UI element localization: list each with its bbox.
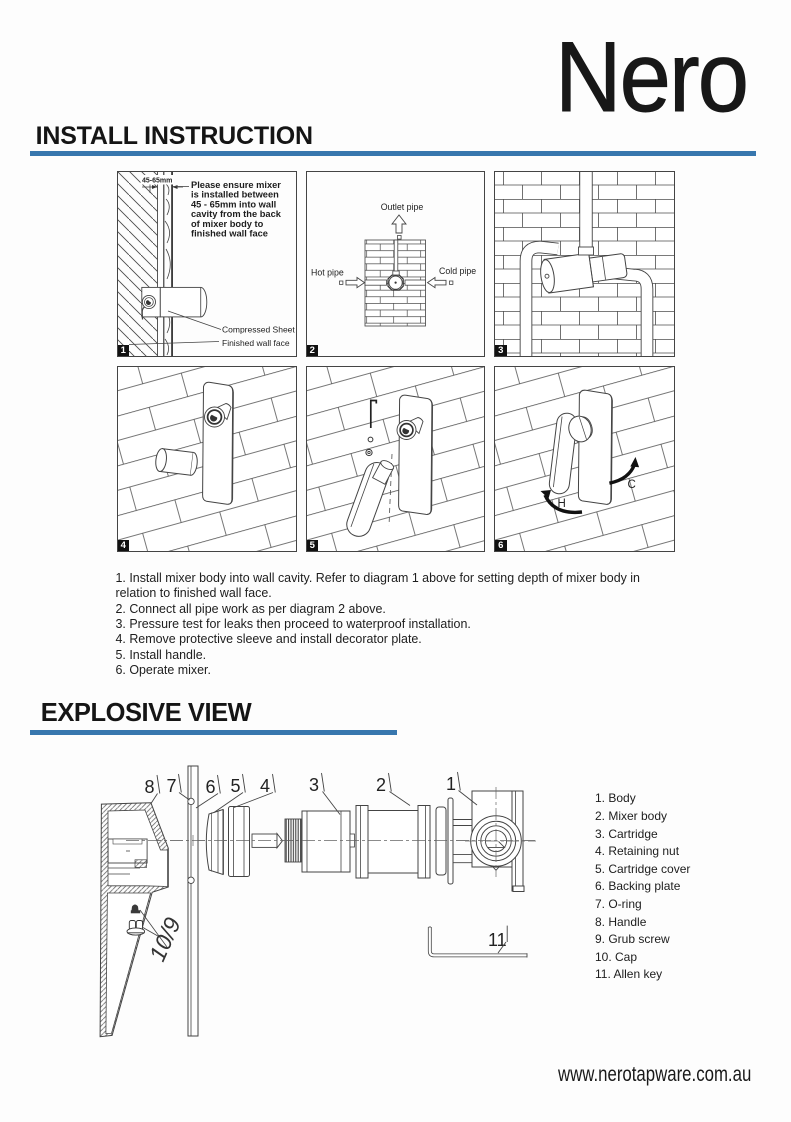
svg-text:Cold pipe: Cold pipe — [439, 266, 476, 276]
svg-text:4: 4 — [260, 776, 270, 796]
svg-text:1: 1 — [446, 774, 456, 794]
svg-text:C: C — [628, 479, 636, 491]
svg-text:11: 11 — [488, 930, 507, 950]
svg-text:H: H — [558, 498, 566, 510]
svg-text:3: 3 — [309, 775, 319, 795]
svg-text:8: 8 — [145, 777, 155, 797]
svg-text:7: 7 — [167, 776, 177, 796]
svg-text:Hot pipe: Hot pipe — [311, 268, 344, 278]
svg-text:45-65mm: 45-65mm — [142, 178, 172, 185]
svg-text:6: 6 — [206, 777, 216, 797]
svg-text:10/9: 10/9 — [144, 913, 186, 965]
svg-text:5: 5 — [231, 776, 241, 796]
svg-text:Outlet pipe: Outlet pipe — [381, 202, 424, 212]
svg-text:Compressed Sheet: Compressed Sheet — [222, 325, 295, 335]
svg-text:Please ensure mixer is ins: Please ensure mixer is installed between… — [191, 180, 294, 239]
svg-text:2: 2 — [376, 775, 386, 795]
svg-text:Finished wall face: Finished wall face — [222, 338, 290, 348]
